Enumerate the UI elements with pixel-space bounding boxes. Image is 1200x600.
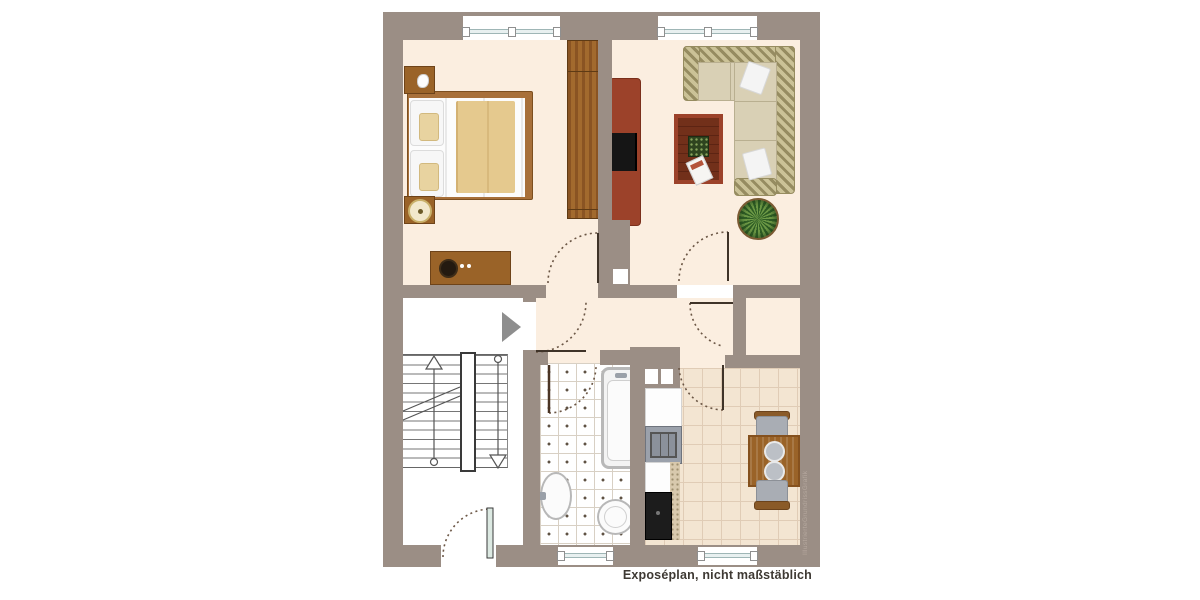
floor-plan-page: IllustrierteGrundrissGrafik Exposéplan, … <box>0 0 1200 600</box>
kitchen-door-arc <box>679 368 723 410</box>
plan-caption: Exposéplan, nicht maßstäblich <box>623 568 812 582</box>
stair-line-end <box>495 356 502 363</box>
stair-break-lines <box>403 387 460 420</box>
floor-plan: IllustrierteGrundrissGrafik <box>383 12 820 567</box>
living-room-door-arc <box>679 232 728 281</box>
apartment-entrance-door-arc <box>536 302 586 352</box>
stair-up-arrow <box>426 356 442 369</box>
hallway-door-arc <box>690 303 722 346</box>
stair-down-arrow <box>490 455 506 468</box>
building-entrance-door-arc <box>443 509 490 557</box>
bedroom-door-arc <box>548 233 598 283</box>
stair-line-end <box>431 459 438 466</box>
building-entrance-door-leaf <box>487 508 493 558</box>
entry-direction-arrow <box>502 312 521 342</box>
symbols-overlay <box>383 12 820 567</box>
watermark-credit: IllustrierteGrundrissGrafik <box>802 465 813 555</box>
bathroom-door-arc <box>549 367 596 413</box>
